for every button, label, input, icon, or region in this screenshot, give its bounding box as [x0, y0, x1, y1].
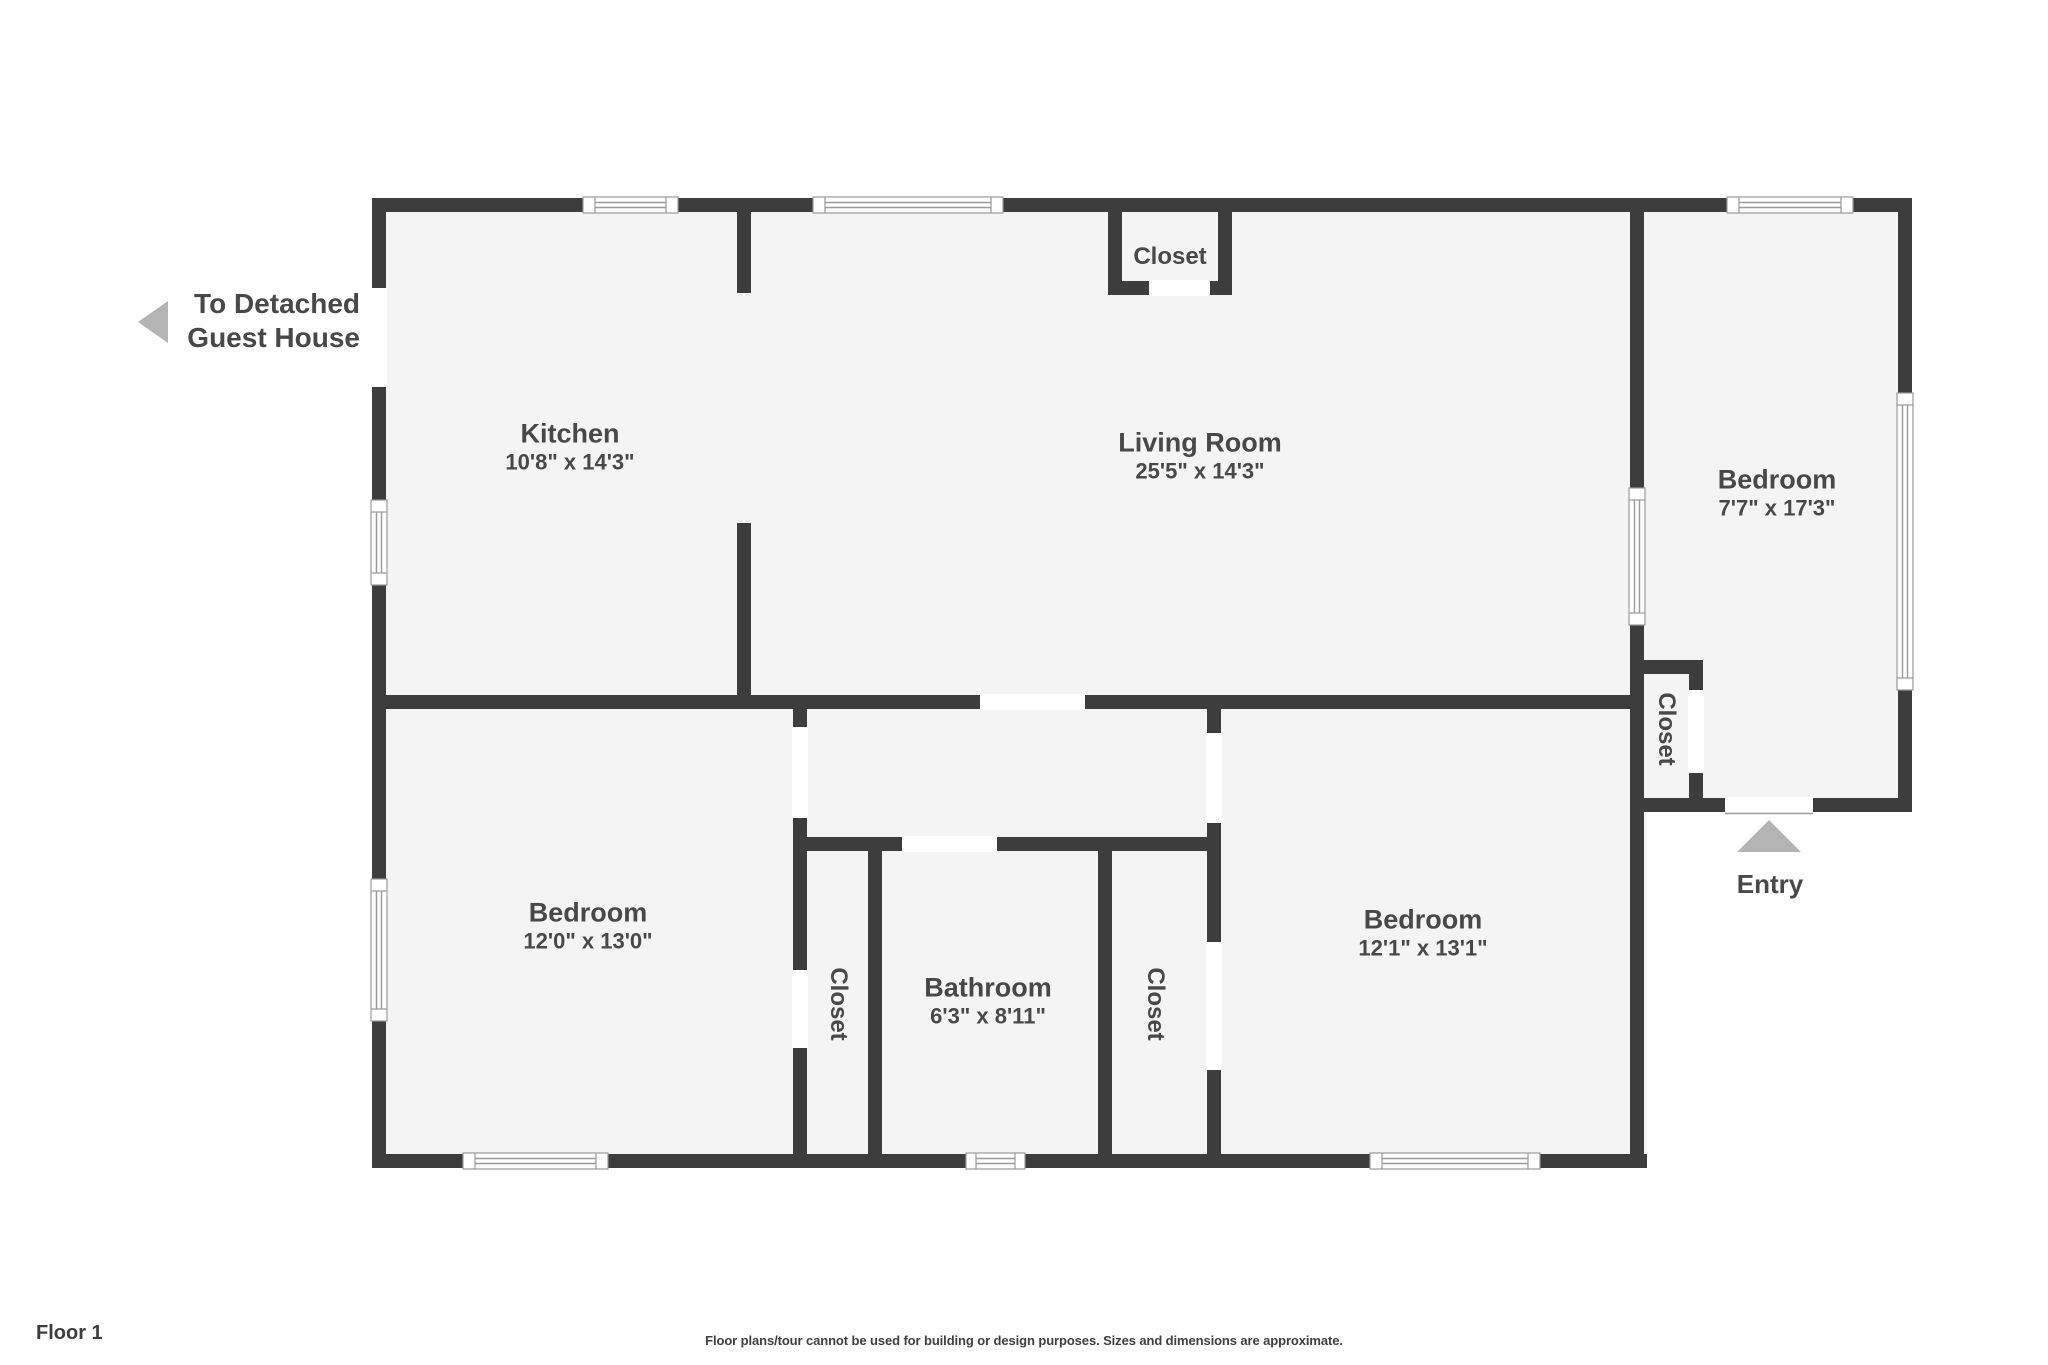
window-left-bedroom: [371, 879, 387, 1021]
entry-text: Entry: [1737, 870, 1803, 898]
window-bottom-bathroom: [966, 1153, 1025, 1169]
closet-label-hall-left: Closet: [825, 967, 851, 1040]
window-bottom-bedroom-right: [1370, 1153, 1540, 1169]
guest-house-line2: Guest House: [187, 321, 360, 355]
opening-bedroom-left-door: [792, 727, 808, 818]
closet-name: Closet: [825, 967, 851, 1040]
room-label-living-room: Living Room 25'5" x 14'3": [1118, 428, 1282, 485]
room-dims: 25'5" x 14'3": [1118, 459, 1282, 485]
disclaimer-text: Floor plans/tour cannot be used for buil…: [705, 1333, 1343, 1348]
wall-bathroom-right: [1098, 851, 1112, 1161]
wall-kitchen-divider-upper: [737, 212, 751, 293]
room-dims: 12'1" x 13'1": [1358, 936, 1487, 962]
window-left-kitchen: [371, 500, 387, 585]
room-dims: 6'3" x 8'11": [924, 1004, 1052, 1030]
guest-house-note: To Detached Guest House: [187, 287, 360, 355]
window-bottom-bedroom-left: [463, 1153, 608, 1169]
room-label-bathroom: Bathroom 6'3" x 8'11": [924, 973, 1052, 1030]
room-name: Bedroom: [523, 898, 652, 929]
floor-indicator: Floor 1: [36, 1322, 103, 1345]
opening-closet-right-door: [1206, 942, 1222, 1070]
wall-wing-divider: [1630, 212, 1644, 1168]
closet-label-hall-right: Closet: [1142, 967, 1168, 1040]
wall-bath-block-top: [793, 837, 1221, 851]
room-name: Living Room: [1118, 428, 1282, 459]
opening-guest-house: [371, 288, 387, 387]
closet-label-top: Closet: [1133, 244, 1206, 270]
entry-label: Entry: [1737, 870, 1803, 898]
entry-gap: [1725, 797, 1813, 815]
opening-bathroom-door: [902, 836, 997, 852]
room-label-bedroom-wing: Bedroom 7'7" x 17'3": [1718, 465, 1837, 522]
wall-kitchen-divider-lower: [737, 523, 751, 709]
closet-name: Closet: [1142, 967, 1168, 1040]
wall-top-closet-left: [1108, 212, 1122, 295]
opening-bedroom-right-door: [1206, 733, 1222, 823]
room-name: Bedroom: [1718, 465, 1837, 496]
opening-closet-left-door: [792, 970, 808, 1048]
opening-wing-closet-door: [1688, 690, 1704, 773]
room-label-bedroom-bottom-left: Bedroom 12'0" x 13'0": [523, 898, 652, 955]
room-dims: 7'7" x 17'3": [1718, 496, 1837, 522]
entry-opening: [1725, 797, 1813, 815]
room-dims: 10'8" x 14'3": [505, 450, 634, 476]
opening-hallway: [980, 694, 1085, 710]
closet-name: Closet: [1653, 692, 1679, 765]
window-top-living: [813, 197, 1003, 213]
window-top-wing-bedroom: [1727, 197, 1853, 213]
wall-top-closet-right: [1218, 212, 1232, 295]
closet-name: Closet: [1133, 244, 1206, 270]
floor-plan-graphic: [0, 0, 2048, 1365]
opening-top-closet: [1149, 280, 1210, 296]
room-name: Bathroom: [924, 973, 1052, 1004]
room-label-bedroom-bottom-right: Bedroom 12'1" x 13'1": [1358, 905, 1487, 962]
closet-label-wing: Closet: [1653, 692, 1679, 765]
room-dims: 12'0" x 13'0": [523, 929, 652, 955]
window-top-kitchen: [583, 197, 678, 213]
cased-opening-living-to-bedroom: [1629, 488, 1645, 625]
room-name: Bedroom: [1358, 905, 1487, 936]
wall-bathroom-left: [868, 851, 882, 1161]
guest-house-line1: To Detached: [187, 287, 360, 321]
guest-house-arrow-icon: [138, 301, 168, 343]
room-name: Kitchen: [505, 419, 634, 450]
window-right-wing-bedroom: [1897, 393, 1913, 690]
wall-wing-closet-top: [1644, 660, 1703, 674]
floor-plan-page: Kitchen 10'8" x 14'3" Living Room 25'5" …: [0, 0, 2048, 1365]
entry-arrow-icon: [1737, 820, 1801, 852]
room-label-kitchen: Kitchen 10'8" x 14'3": [505, 419, 634, 476]
